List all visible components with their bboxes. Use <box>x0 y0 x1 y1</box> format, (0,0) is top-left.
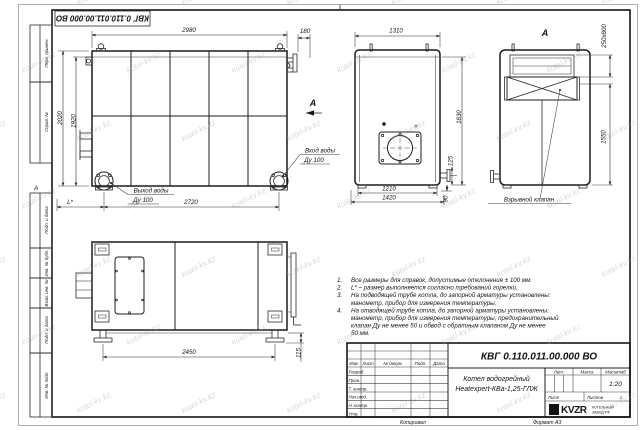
drawing-sheet: Перв. примен. Справ. № А Подп. и дата Ин… <box>0 0 644 430</box>
dim-180: 180 <box>300 28 311 35</box>
note-text: L* – размер выполняется согласно требова… <box>351 285 518 292</box>
inlet-text: Вход воды <box>305 148 335 155</box>
rear-view-dimensions: 250x800 1550 <box>576 24 613 185</box>
inlet-label: Вход воды Ду 100 <box>282 148 340 177</box>
top-right-plate-icon <box>287 253 301 325</box>
doc-number: КВГ 0.110.011.00.000 ВО <box>481 352 597 363</box>
note-number: 3. <box>337 292 342 299</box>
label-listov: Листов <box>586 395 604 400</box>
dim-1420: 1420 <box>382 195 396 202</box>
note-text: Все размеры для справок, допустимые откл… <box>351 277 532 284</box>
note-text: манометр, прибор для измерения температу… <box>351 300 496 307</box>
dim-2450: 2450 <box>181 349 196 356</box>
logo-text: KVZR <box>561 405 588 416</box>
row-nachotd: Нач.отд. <box>349 395 368 400</box>
org-name-line2: ЗАВОД.РФ <box>592 411 610 415</box>
dim-1830: 1830 <box>456 110 463 124</box>
frame-field-podp-data-2: Подп. и дата <box>44 316 49 344</box>
product-name-line2: Heatexpert-КВа-1,25-ГЛЖ <box>455 386 538 393</box>
rear-view-title: А <box>541 28 549 38</box>
org-name-line1: КОТЕЛЬНЫЙ <box>592 406 614 410</box>
row-tkontr: Т. контр. <box>349 386 368 391</box>
frame-zone-letter: А <box>33 185 38 192</box>
notes: 1. Все размеры для справок, допустимые о… <box>336 277 559 337</box>
frame-field-sprav-no: Справ. № <box>44 112 49 132</box>
col-doc: № докум. <box>383 361 402 366</box>
dim-2980: 2980 <box>181 27 196 34</box>
row-prov: Пров. <box>349 378 361 383</box>
outlet-dn-text: Ду 100 <box>132 197 153 204</box>
front-view-dimensions: 1310 1830 125 90 1210 1420 <box>351 28 466 206</box>
dim-90: 90 <box>443 195 450 202</box>
rear-view-a: А Взрывной клапан <box>488 24 613 204</box>
format-label: Формат А3 <box>533 420 561 426</box>
note-number: 2. <box>336 285 342 292</box>
label-list: Лист <box>547 395 560 400</box>
col-podp: Подп. <box>415 361 427 366</box>
row-nkontr: Н. контр. <box>349 403 369 408</box>
dim-2020: 2020 <box>57 111 64 126</box>
dim-l-star: L* <box>67 199 73 206</box>
dim-1550: 1550 <box>601 130 608 144</box>
row-razrab: Разраб. <box>349 370 365 375</box>
front-view: 1310 1830 125 90 1210 1420 <box>351 28 466 206</box>
dim-1310: 1310 <box>389 28 403 35</box>
listov-value: 1 <box>620 395 623 400</box>
explosion-valve-text: Взрывной клапан <box>504 197 555 204</box>
row-utv: Утв. <box>349 411 359 416</box>
hatch-icon <box>115 257 144 314</box>
frame-field-vzam-inv: Взам. инв. № <box>44 279 49 306</box>
note-text: клапан Ду не менее 50 и обвод с обратным… <box>351 323 546 330</box>
outlet-text: Выход воды <box>134 188 169 195</box>
top-view: 2450 115 <box>76 242 304 362</box>
dim-1210: 1210 <box>382 186 396 193</box>
scale-value: 1:20 <box>609 381 622 388</box>
corner-pads-icon <box>95 244 282 322</box>
dim-250x800: 250x800 <box>601 24 608 49</box>
top-left-stub-icon <box>76 273 92 298</box>
label-massa: Масса <box>581 369 595 374</box>
col-list: Лист <box>361 361 374 366</box>
burner-flange-icon <box>379 131 421 165</box>
dim-115: 115 <box>296 348 303 358</box>
sensor-point-icon <box>382 122 385 125</box>
explosion-valve-icon <box>505 77 580 100</box>
label-lit: Лит. <box>553 369 564 374</box>
top-view-dimensions: 2450 115 <box>103 333 304 362</box>
rear-stub-icon <box>491 171 501 183</box>
side-view: 2980 180 2020 1920 2720 L* А Вход воды <box>57 27 340 211</box>
col-izm: Изм. <box>349 361 358 366</box>
copied-label: Копировал <box>400 420 426 426</box>
dim-1920: 1920 <box>71 114 78 128</box>
note-text: 50 мм. <box>351 330 370 337</box>
note-text: На подводящей трубе котла, до запорной а… <box>351 292 551 299</box>
top-stamp-doc-number: КВГ 0.110.011.00.000 ВО <box>55 14 149 23</box>
note-number: 4. <box>337 307 342 314</box>
water-flange-icon <box>95 172 288 190</box>
logo-mark-icon <box>549 404 559 415</box>
frame-field-inv-dubl: Инв. № дубл. <box>44 249 49 276</box>
frame-field-perv-primen: Перв. примен. <box>44 38 49 67</box>
front-stub-icon <box>440 170 450 182</box>
dim-2720: 2720 <box>183 199 198 206</box>
louver-icon <box>510 55 574 77</box>
view-arrow-letter: А <box>309 98 317 108</box>
note-number: 1. <box>337 277 342 284</box>
note-text: манометр, прибор для измерения температу… <box>351 315 559 322</box>
frame-field-podp-data-1: Подп. и дата <box>44 206 49 234</box>
company-logo: KVZR КОТЕЛЬНЫЙ ЗАВОД.РФ <box>549 404 614 416</box>
feet-icon <box>94 330 284 342</box>
lifting-lug-icon <box>86 44 285 65</box>
cross-mark-icon <box>414 124 418 128</box>
view-direction-arrow: А <box>306 98 322 116</box>
left-bracket-icon <box>80 130 92 160</box>
col-data: Дата <box>432 361 445 366</box>
side-bracket-icon <box>287 54 297 72</box>
product-name-line1: Котел водогрейный <box>463 375 530 383</box>
frame-field-inv-podl: Инв. № подл. <box>44 371 49 398</box>
inlet-dn-text: Ду 100 <box>303 157 324 164</box>
engineering-drawing: Перв. примен. Справ. № А Подп. и дата Ин… <box>0 0 644 430</box>
title-block: КВГ 0.110.011.00.000 ВО Изм. Лист № доку… <box>347 343 630 426</box>
label-masshtab: Масштаб <box>605 369 626 374</box>
dim-125: 125 <box>448 155 455 166</box>
note-text: На отводящей трубе котла, до запорной ар… <box>351 307 549 314</box>
